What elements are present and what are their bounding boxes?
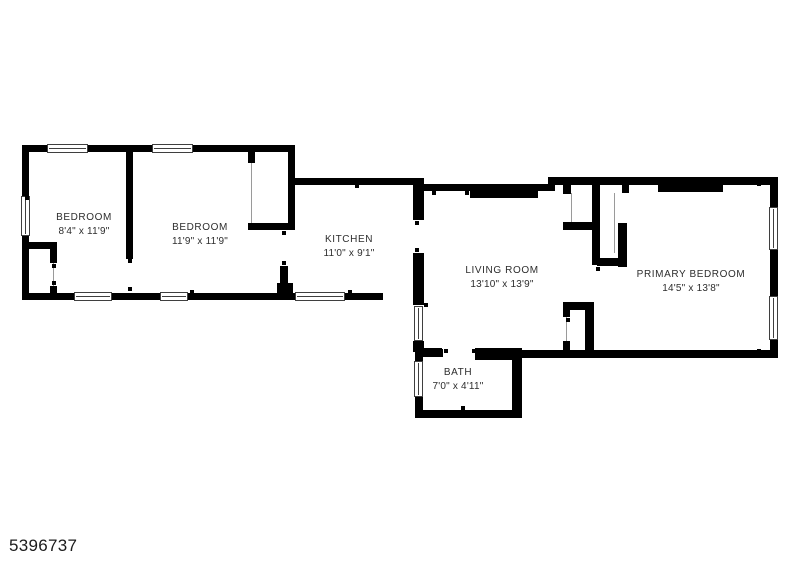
window <box>152 144 193 153</box>
room-dims: 14'5" x 13'8" <box>637 283 746 294</box>
wall-segment <box>413 253 424 305</box>
room-label-kitchen: KITCHEN 11'0" x 9'1" <box>324 234 375 259</box>
wall-segment <box>563 184 571 194</box>
room-dims: 11'0" x 9'1" <box>324 248 375 259</box>
wall-segment <box>563 308 570 317</box>
floor-plan: BEDROOM 8'4" x 11'9" BEDROOM 11'9" x 11'… <box>0 0 800 561</box>
closet-door-line <box>251 163 252 223</box>
wall-segment <box>563 341 570 352</box>
window <box>160 292 188 301</box>
door-tick <box>190 290 194 294</box>
door-tick <box>25 196 29 200</box>
door-tick <box>566 318 570 322</box>
room-name: BEDROOM <box>56 212 112 223</box>
wall-segment <box>592 184 600 265</box>
wall-segment <box>470 184 538 198</box>
closet-door-line <box>614 193 615 253</box>
wall-segment <box>415 410 522 418</box>
wall-segment <box>658 177 723 192</box>
wall-segment <box>280 266 288 284</box>
window <box>769 296 778 340</box>
room-name: LIVING ROOM <box>465 265 538 276</box>
wall-segment <box>585 302 594 352</box>
wall-segment <box>622 184 629 193</box>
room-dims: 8'4" x 11'9" <box>56 226 112 237</box>
door-tick <box>757 182 761 186</box>
door-tick <box>127 197 131 201</box>
plan-id-label: 5396737 <box>9 536 77 556</box>
wall-segment <box>522 350 778 358</box>
door-tick <box>52 264 56 268</box>
room-name: KITCHEN <box>324 234 375 245</box>
wall-segment <box>563 222 592 230</box>
door-tick <box>415 221 419 225</box>
room-name: BATH <box>433 367 484 378</box>
room-dims: 13'10" x 13'9" <box>465 279 538 290</box>
window <box>769 207 778 250</box>
door-tick <box>465 191 469 195</box>
door-tick <box>472 349 476 353</box>
door-tick <box>348 290 352 294</box>
room-name: PRIMARY BEDROOM <box>637 269 746 280</box>
door-tick <box>424 303 428 307</box>
window <box>295 292 345 301</box>
wall-segment <box>597 258 627 266</box>
wall-segment <box>277 283 293 300</box>
wall-segment <box>548 177 555 191</box>
room-label-bedroom-1: BEDROOM 8'4" x 11'9" <box>56 212 112 237</box>
wall-segment <box>50 286 57 293</box>
room-dims: 7'0" x 4'11" <box>433 381 484 392</box>
window <box>21 196 30 236</box>
door-tick <box>757 349 761 353</box>
room-label-bath: BATH 7'0" x 4'11" <box>433 367 484 392</box>
door-tick <box>355 184 359 188</box>
closet-door-line <box>571 193 572 222</box>
wall-segment <box>248 223 295 230</box>
room-dims: 11'9" x 11'9" <box>172 236 228 247</box>
door-tick <box>444 349 448 353</box>
wall-segment <box>29 242 57 249</box>
door-tick <box>415 248 419 252</box>
room-name: BEDROOM <box>172 222 228 233</box>
wall-segment <box>50 249 57 263</box>
door-tick <box>282 261 286 265</box>
window <box>414 361 423 397</box>
room-label-living-room: LIVING ROOM 13'10" x 13'9" <box>465 265 538 290</box>
door-tick <box>461 406 465 410</box>
door-tick <box>282 231 286 235</box>
door-tick <box>128 259 132 263</box>
window <box>47 144 88 153</box>
wall-segment <box>288 145 295 230</box>
room-label-bedroom-2: BEDROOM 11'9" x 11'9" <box>172 222 228 247</box>
door-tick <box>596 267 600 271</box>
wall-segment <box>512 349 522 418</box>
wall-segment <box>248 152 255 163</box>
door-tick <box>432 191 436 195</box>
wall-segment <box>413 178 424 220</box>
door-tick <box>52 281 56 285</box>
wall-segment <box>423 349 443 357</box>
window <box>414 306 423 341</box>
wall-segment <box>295 178 424 185</box>
door-tick <box>128 287 132 291</box>
wall-segment <box>126 152 133 259</box>
window <box>74 292 112 301</box>
room-label-primary-bedroom: PRIMARY BEDROOM 14'5" x 13'8" <box>637 269 746 294</box>
